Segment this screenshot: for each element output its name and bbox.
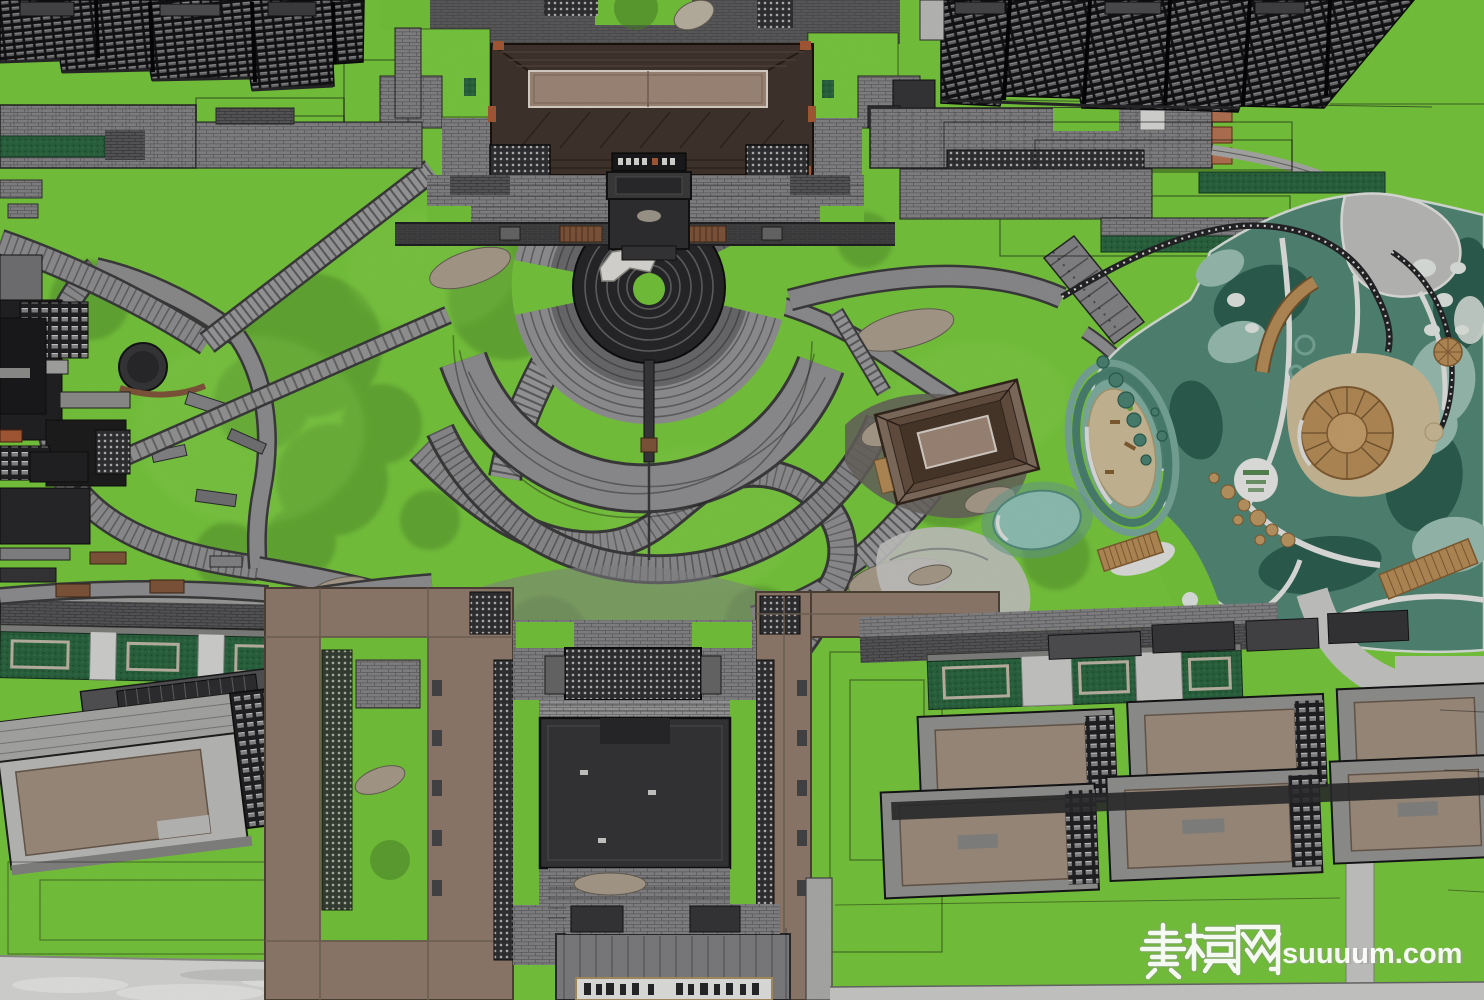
svg-text:suuuum.com: suuuum.com <box>1282 938 1462 970</box>
